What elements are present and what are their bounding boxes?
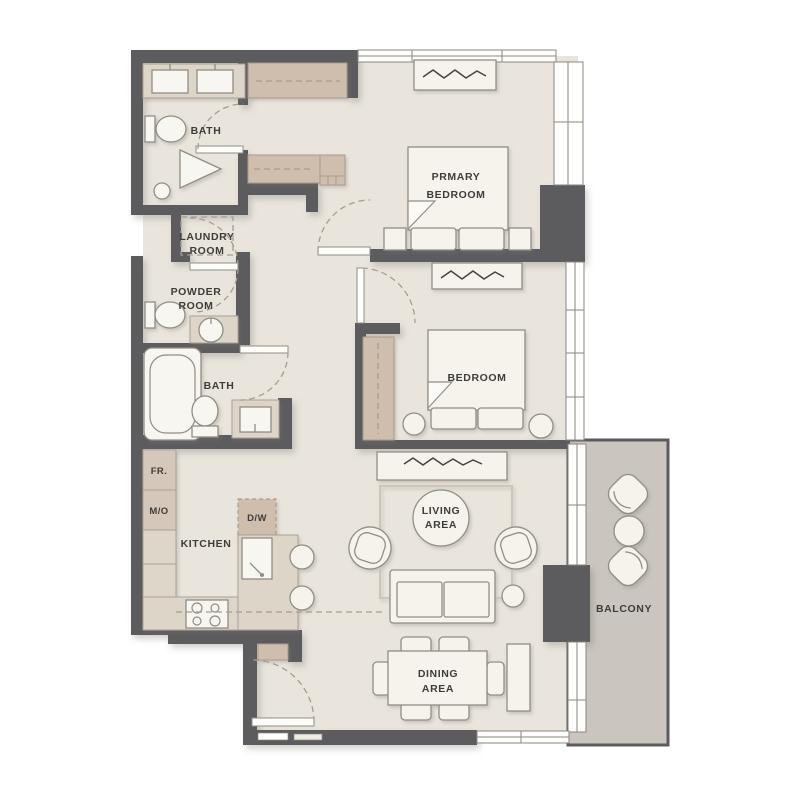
wall: [355, 440, 570, 449]
bar-stool-icon: [290, 586, 314, 610]
bed-icon: [428, 330, 525, 410]
wall: [355, 323, 400, 334]
wall: [131, 449, 143, 601]
sink-icon: [197, 70, 233, 93]
door-leaf: [196, 146, 243, 153]
kitchen-cabinet: [143, 564, 176, 597]
room-label-bedroom: BEDROOM: [447, 372, 506, 384]
sofa-cushion: [444, 582, 489, 617]
appliance-label-microwave-oven: M/O: [149, 506, 168, 517]
sideboard: [507, 644, 530, 711]
wall: [131, 205, 248, 215]
entry-door-leaf: [252, 718, 314, 726]
room-label-bath-top: BATH: [191, 125, 222, 137]
room-label-powder: ROOM: [178, 300, 213, 312]
room-label-powder: POWDER: [171, 286, 222, 298]
room-label-living: AREA: [425, 519, 457, 531]
wall: [168, 630, 302, 644]
threshold-slit: [294, 734, 322, 740]
room-label-laundry: LAUNDRY: [179, 231, 234, 243]
shower-drain-icon: [154, 183, 170, 199]
window-bottom: [477, 731, 569, 743]
floor-plan-page: BATH LAUNDRY ROOM POWDER ROOM BATH KITCH…: [0, 0, 800, 800]
entry-shelf: [258, 644, 288, 660]
window-right-lower: [566, 262, 584, 440]
room-label-bath-mid: BATH: [204, 380, 235, 392]
toilet-icon: [145, 302, 155, 328]
tv-console: [377, 452, 507, 480]
wall: [347, 50, 358, 98]
toilet-icon: [145, 116, 155, 142]
window-right-upper: [554, 62, 583, 185]
door-leaf: [190, 263, 238, 270]
door-leaf: [240, 346, 288, 353]
room-label-dining: DINING: [418, 668, 458, 680]
pillow-icon: [478, 408, 523, 429]
door-leaf: [357, 268, 364, 323]
outdoor-table-icon: [614, 516, 644, 546]
dining-chair-icon: [487, 662, 504, 695]
room-label-living: LIVING: [422, 505, 461, 517]
sink-icon: [152, 70, 188, 93]
nightstand-icon: [403, 413, 425, 435]
wall: [131, 50, 143, 213]
room-label-balcony: BALCONY: [596, 603, 652, 615]
threshold-slit: [258, 733, 288, 740]
pillow-icon: [459, 228, 504, 250]
appliance-label-fridge: FR.: [151, 466, 168, 477]
appliance-label-dishwasher: D/W: [247, 513, 267, 524]
structural-column: [540, 185, 585, 262]
room-label-primary-bedroom: BEDROOM: [426, 189, 485, 201]
nightstand-icon: [509, 228, 531, 250]
sofa-cushion: [397, 582, 442, 617]
pillow-icon: [411, 228, 456, 250]
room-label-laundry: ROOM: [189, 245, 224, 257]
toilet-icon: [192, 396, 218, 426]
kitchen-sink-icon: [242, 538, 272, 579]
structural-column: [543, 565, 590, 642]
floor-plan: BATH LAUNDRY ROOM POWDER ROOM BATH KITCH…: [0, 0, 800, 800]
toilet-icon: [192, 426, 218, 437]
wall: [243, 644, 257, 730]
pillow-icon: [431, 408, 476, 429]
door-leaf: [318, 247, 370, 255]
cooktop-icon: [186, 600, 228, 628]
coffee-table-icon: [413, 490, 469, 546]
wall: [288, 644, 302, 662]
dresser: [432, 263, 522, 289]
side-table-icon: [502, 585, 524, 607]
room-label-dining: AREA: [422, 683, 454, 695]
nightstand-icon: [384, 228, 406, 250]
hall-cabinet: [320, 155, 345, 185]
bar-stool-icon: [290, 545, 314, 569]
kitchen-cabinet: [143, 530, 176, 564]
room-label-kitchen: KITCHEN: [181, 538, 232, 550]
toilet-icon: [156, 116, 186, 142]
nightstand-icon: [529, 414, 553, 438]
room-label-primary-bedroom: PRMARY: [432, 171, 481, 183]
wall: [306, 183, 318, 212]
